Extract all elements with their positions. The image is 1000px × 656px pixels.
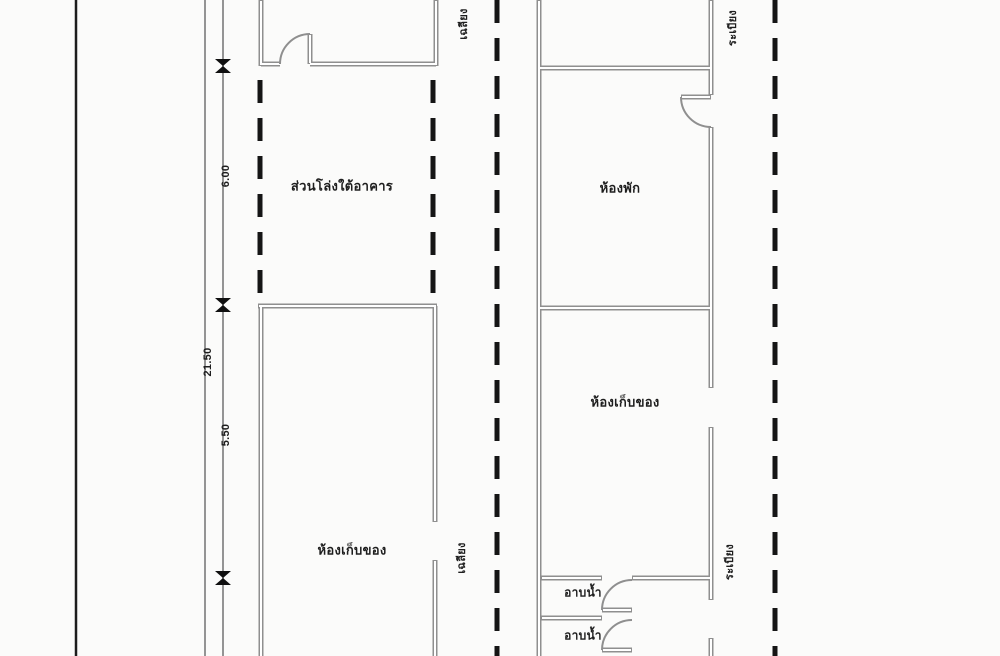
dimension-upper-segment: 6.00 — [220, 165, 232, 188]
annotation-balcony-mid: ระเบียง — [720, 544, 738, 580]
annotation-balcony-top: ระเบียง — [723, 10, 741, 46]
dimension-lines — [205, 0, 231, 656]
annotation-porch-mid: เฉลียง — [452, 542, 470, 573]
annotation-porch-top: เฉลียง — [454, 8, 472, 39]
door-arc-bath-lower — [602, 620, 632, 650]
door-arc-top-left-room — [280, 34, 310, 64]
floor-plan: ส่วนโล่งใต้อาคาร ห้องพัก ห้องเก็บของ ห้อ… — [0, 0, 1000, 656]
room-label-bath-upper: อาบน้ำ — [564, 584, 602, 603]
room-label-open-under-building: ส่วนโล่งใต้อาคาร — [291, 176, 393, 197]
dimension-lower-segment: 5.50 — [220, 424, 232, 447]
floor-plan-drawing — [0, 0, 1000, 656]
room-label-storage-left: ห้องเก็บของ — [317, 540, 386, 561]
room-label-living-room: ห้องพัก — [600, 178, 641, 199]
room-label-storage-right: ห้องเก็บของ — [590, 392, 659, 413]
door-arc-living-room — [681, 97, 711, 127]
door-arc-bath-upper — [602, 580, 632, 610]
room-label-bath-lower: อาบน้ำ — [564, 627, 602, 646]
dimension-overall: 21.50 — [202, 347, 214, 376]
